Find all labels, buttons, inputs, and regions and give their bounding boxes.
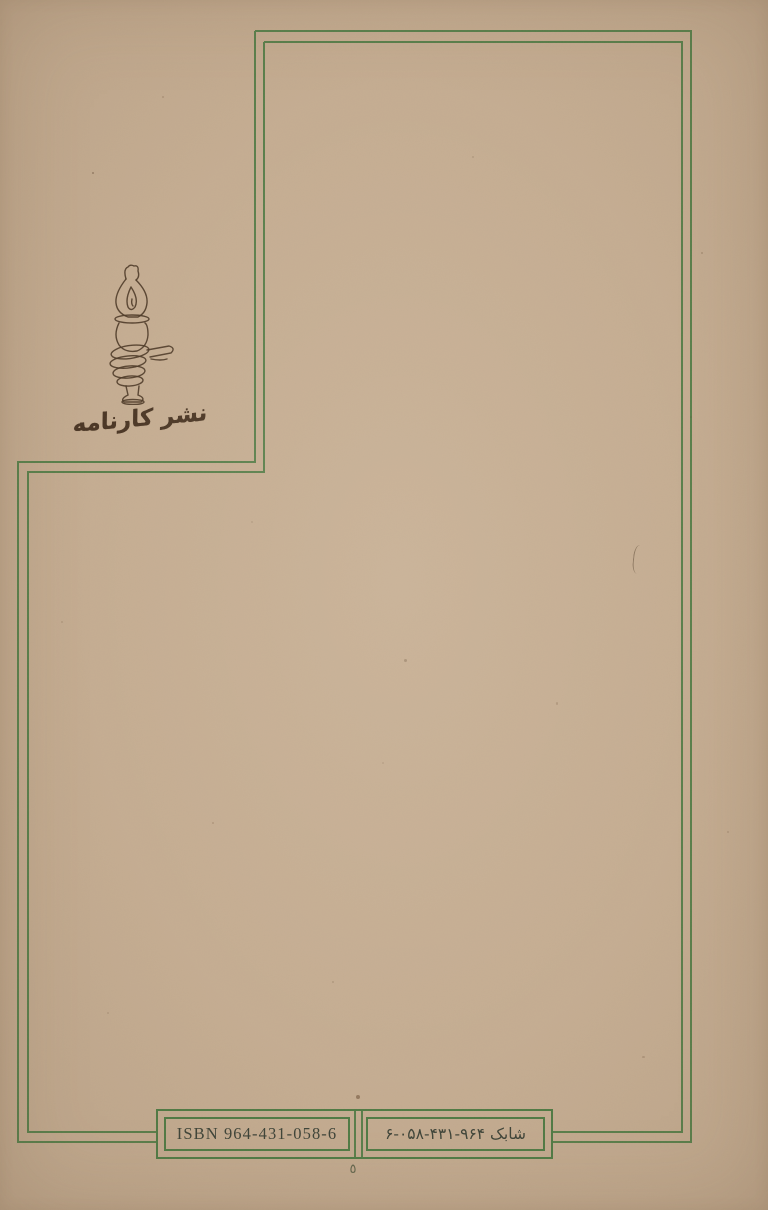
book-back-cover: نشر کارنامه ISBN 964-431-058-6 شابک ۹۶۴-…: [0, 0, 768, 1210]
hand-holding-oil-lamp-icon: [95, 255, 185, 405]
isbn-persian: شابک ۹۶۴-۴۳۱-۰۵۸-۶: [366, 1117, 545, 1151]
isbn-box: ISBN 964-431-058-6 شابک ۹۶۴-۴۳۱-۰۵۸-۶: [156, 1109, 553, 1159]
isbn-box-divider-line: [354, 1109, 356, 1159]
isbn-box-divider-line: [361, 1109, 363, 1159]
page-number-mark: ٥: [344, 1161, 362, 1177]
isbn-latin: ISBN 964-431-058-6: [164, 1117, 350, 1151]
page-border-frame: [0, 0, 768, 1210]
